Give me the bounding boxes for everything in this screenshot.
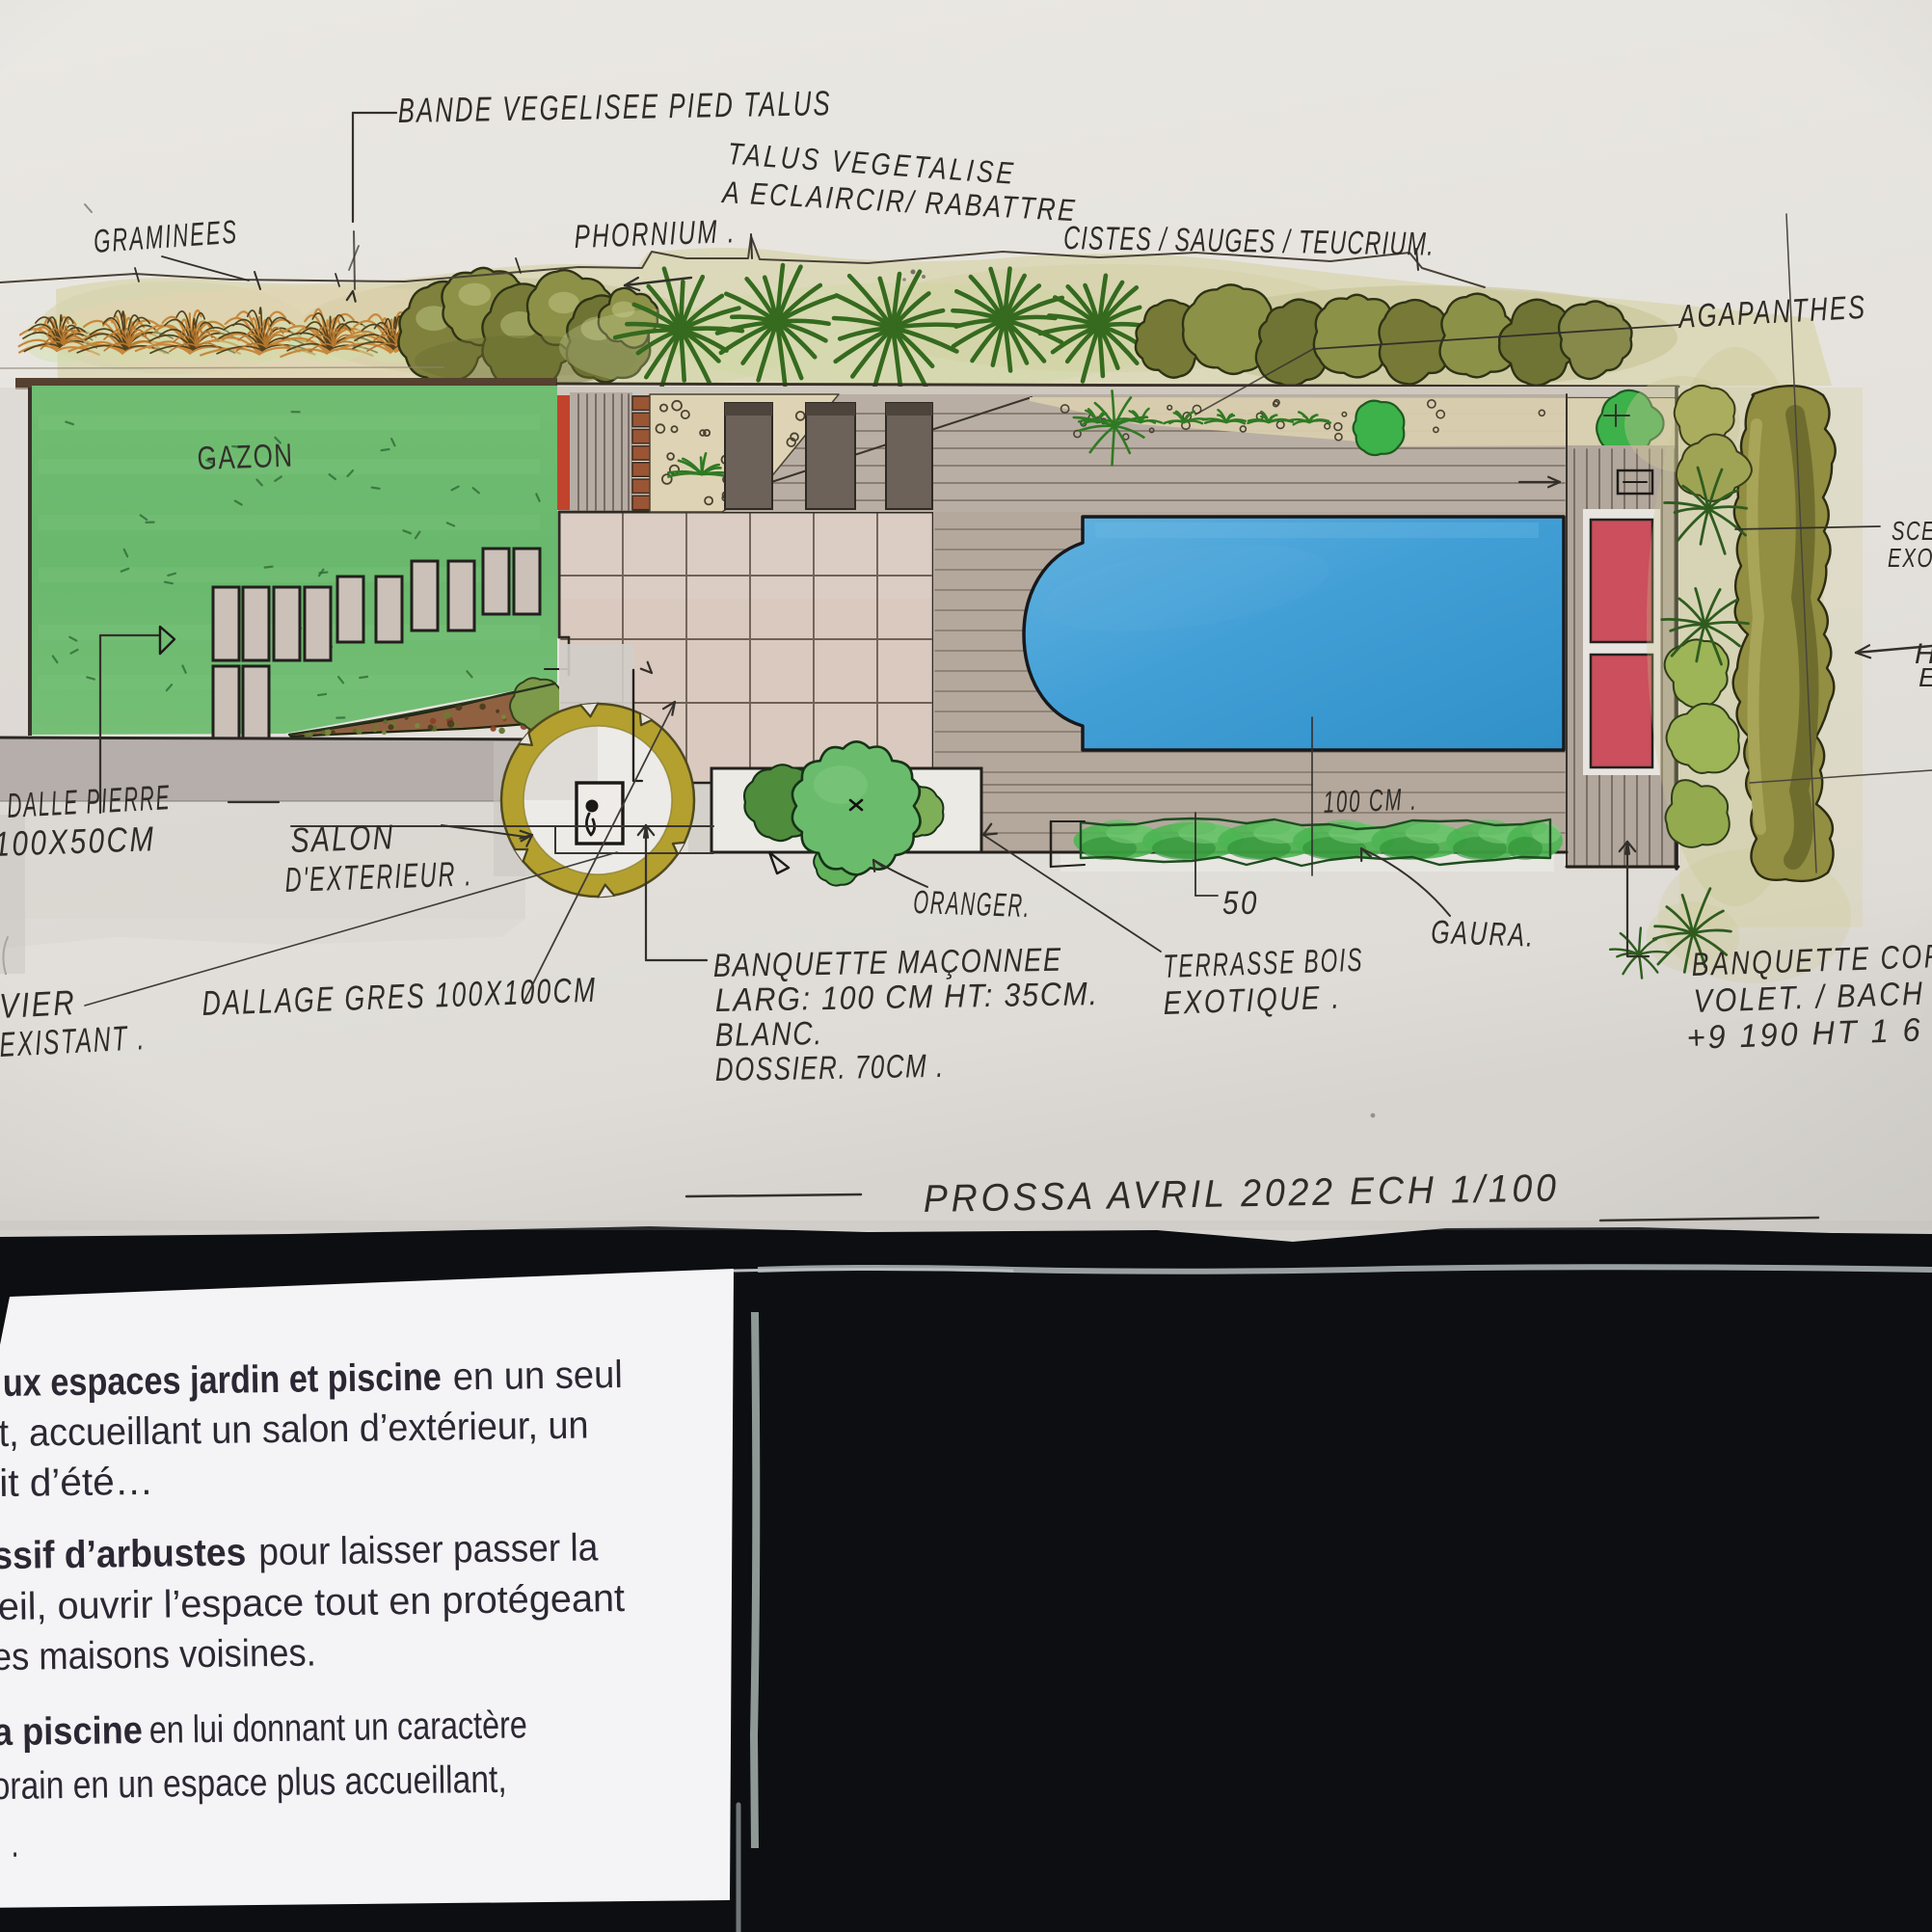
- svg-text:es maisons voisines.: es maisons voisines.: [0, 1631, 316, 1678]
- svg-text:ux espaces jardin et piscine: ux espaces jardin et piscine: [3, 1356, 443, 1405]
- svg-text:en un seul: en un seul: [452, 1354, 623, 1398]
- svg-text:orain en un espace plus accuei: orain en un espace plus accueillant,: [0, 1758, 507, 1808]
- svg-text:.: .: [11, 1823, 19, 1865]
- svg-text:en lui donnant un caractère: en lui donnant un caractère: [149, 1704, 528, 1751]
- svg-text:ssif d’arbustes: ssif d’arbustes: [0, 1531, 247, 1577]
- svg-text:pour laisser passer la: pour laisser passer la: [258, 1526, 599, 1573]
- svg-text:leil, ouvrir l’espace tout en: leil, ouvrir l’espace tout en protégeant: [0, 1577, 625, 1628]
- svg-text:it d’été…: it d’été…: [0, 1461, 154, 1505]
- svg-text:a piscine: a piscine: [0, 1709, 143, 1754]
- svg-text:t, accueillant un salon d’exté: t, accueillant un salon d’extérieur, un: [0, 1404, 589, 1455]
